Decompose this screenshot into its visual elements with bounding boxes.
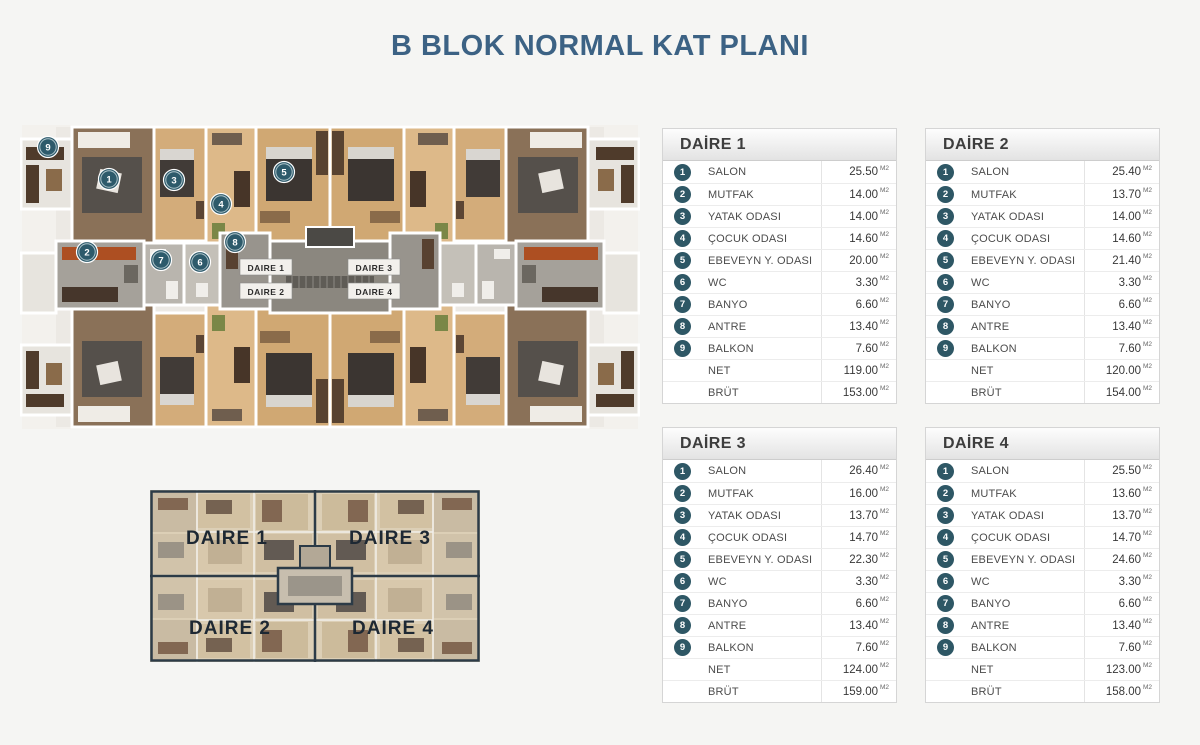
room-area-cell: 6.60M2 [1084, 294, 1159, 315]
room-marker: 2 [77, 242, 98, 263]
main-floorplan-image: DAIRE 1DAIRE 3DAIRE 2DAIRE 4 913452768 [20, 113, 640, 441]
room-label: BRÜT [708, 387, 821, 399]
mini-keyplan-image: DAIRE 1DAIRE 3DAIRE 2DAIRE 4 [150, 490, 480, 662]
table-row: 2MUTFAK16.00M2 [663, 482, 896, 504]
room-marker: 9 [38, 137, 59, 158]
room-area-cell: 13.40M2 [821, 615, 896, 636]
table-row: BRÜT158.00M2 [926, 680, 1159, 702]
room-area-value: 13.70 [849, 510, 878, 522]
room-area-cell: 24.60M2 [1084, 549, 1159, 570]
area-unit: M2 [1143, 165, 1154, 172]
room-number-badge: 2 [937, 186, 954, 203]
table-row: 2MUTFAK13.70M2 [926, 183, 1159, 205]
room-area-value: 123.00 [1106, 664, 1141, 676]
room-area-value: 22.30 [849, 554, 878, 566]
room-number-badge: 8 [674, 318, 691, 335]
room-label: BANYO [708, 299, 821, 311]
room-label: WC [971, 277, 1084, 289]
area-unit: M2 [1143, 596, 1154, 603]
room-area-value: 7.60 [856, 343, 878, 355]
room-label: YATAK ODASI [971, 211, 1084, 223]
area-unit: M2 [880, 486, 891, 493]
area-unit: M2 [880, 640, 891, 647]
table-row: 4ÇOCUK ODASI14.60M2 [663, 227, 896, 249]
room-number-badge: 2 [674, 186, 691, 203]
room-number-badge: 6 [674, 573, 691, 590]
room-area-cell: 3.30M2 [1084, 272, 1159, 293]
table-row: 1SALON25.50M2 [926, 460, 1159, 482]
room-area-value: 16.00 [849, 488, 878, 500]
room-number-badge: 5 [674, 252, 691, 269]
area-unit: M2 [1143, 385, 1154, 392]
room-area-value: 6.60 [1119, 598, 1141, 610]
room-number-badge: 1 [674, 463, 691, 480]
badge-spacer [937, 661, 954, 678]
room-label: ANTRE [971, 620, 1084, 632]
area-unit: M2 [880, 231, 891, 238]
room-number-badge: 7 [937, 595, 954, 612]
area-unit: M2 [880, 187, 891, 194]
area-unit: M2 [1143, 253, 1154, 260]
daire-3-table: DAİRE 3 1SALON26.40M22MUTFAK16.00M23YATA… [662, 427, 897, 703]
table-row: 9BALKON7.60M2 [926, 337, 1159, 359]
table-row: 5EBEVEYN Y. ODASI20.00M2 [663, 249, 896, 271]
daire-2-table: DAİRE 2 1SALON25.40M22MUTFAK13.70M23YATA… [925, 128, 1160, 404]
room-area-cell: 25.50M2 [1084, 460, 1159, 482]
room-area-cell: 13.70M2 [1084, 184, 1159, 205]
room-label: ANTRE [708, 321, 821, 333]
room-number-badge: 4 [674, 529, 691, 546]
badge-spacer [937, 384, 954, 401]
svg-text:7: 7 [158, 255, 163, 266]
apartment-title: DAİRE 2 [926, 129, 1159, 161]
room-area-value: 6.60 [1119, 299, 1141, 311]
room-area-value: 7.60 [856, 642, 878, 654]
table-row: 3YATAK ODASI13.70M2 [663, 504, 896, 526]
room-area-cell: 7.60M2 [1084, 338, 1159, 359]
area-unit: M2 [1143, 187, 1154, 194]
svg-text:4: 4 [218, 199, 224, 210]
room-area-value: 14.70 [849, 532, 878, 544]
area-unit: M2 [880, 596, 891, 603]
table-row: 3YATAK ODASI14.00M2 [663, 205, 896, 227]
room-number-badge: 9 [937, 340, 954, 357]
room-area-value: 13.70 [1112, 189, 1141, 201]
table-row: 6WC3.30M2 [663, 271, 896, 293]
room-area-value: 13.70 [1112, 510, 1141, 522]
area-unit: M2 [1143, 341, 1154, 348]
table-row: 6WC3.30M2 [663, 570, 896, 592]
room-area-cell: 3.30M2 [821, 571, 896, 592]
area-unit: M2 [880, 363, 891, 370]
table-row: 3YATAK ODASI13.70M2 [926, 504, 1159, 526]
room-number-badge: 8 [674, 617, 691, 634]
room-label: WC [708, 277, 821, 289]
room-number-badge: 2 [937, 485, 954, 502]
room-label: BANYO [971, 598, 1084, 610]
room-number-badge: 3 [674, 208, 691, 225]
room-area-value: 6.60 [856, 299, 878, 311]
keyplan-unit-label: DAIRE 4 [352, 618, 434, 639]
table-row: 4ÇOCUK ODASI14.70M2 [926, 526, 1159, 548]
room-label: MUTFAK [708, 189, 821, 201]
area-unit: M2 [880, 297, 891, 304]
table-row: 4ÇOCUK ODASI14.70M2 [663, 526, 896, 548]
room-number-badge: 9 [674, 340, 691, 357]
room-area-value: 20.00 [849, 255, 878, 267]
room-area-value: 13.40 [849, 321, 878, 333]
badge-spacer [674, 661, 691, 678]
svg-text:DAIRE 3: DAIRE 3 [355, 263, 392, 273]
room-area-value: 25.50 [849, 166, 878, 178]
room-area-value: 14.70 [1112, 532, 1141, 544]
area-unit: M2 [1143, 319, 1154, 326]
room-label: EBEVEYN Y. ODASI [708, 255, 821, 267]
table-row: 9BALKON7.60M2 [663, 337, 896, 359]
room-number-badge: 9 [674, 639, 691, 656]
room-area-cell: 7.60M2 [821, 338, 896, 359]
table-row: 7BANYO6.60M2 [926, 592, 1159, 614]
room-number-badge: 5 [937, 551, 954, 568]
core-notch [300, 546, 330, 570]
badge-spacer [937, 362, 954, 379]
room-number-badge: 9 [937, 639, 954, 656]
room-label: WC [708, 576, 821, 588]
room-number-badge: 1 [937, 164, 954, 181]
room-label: SALON [971, 465, 1084, 477]
room-label: BALKON [708, 642, 821, 654]
room-label: WC [971, 576, 1084, 588]
room-area-cell: 7.60M2 [1084, 637, 1159, 658]
table-row: 3YATAK ODASI14.00M2 [926, 205, 1159, 227]
room-area-value: 7.60 [1119, 343, 1141, 355]
room-area-cell: 26.40M2 [821, 460, 896, 482]
area-unit: M2 [880, 385, 891, 392]
room-marker: 8 [225, 232, 246, 253]
room-label: ÇOCUK ODASI [971, 532, 1084, 544]
apartment-title: DAİRE 3 [663, 428, 896, 460]
room-number-badge: 5 [937, 252, 954, 269]
table-row: BRÜT153.00M2 [663, 381, 896, 403]
corridor-unit-label: DAIRE 4 [348, 283, 400, 299]
area-unit: M2 [1143, 640, 1154, 647]
area-unit: M2 [880, 165, 891, 172]
room-area-cell: 3.30M2 [1084, 571, 1159, 592]
room-label: NET [708, 365, 821, 377]
room-area-cell: 14.00M2 [821, 184, 896, 205]
room-area-cell: 153.00M2 [821, 382, 896, 403]
apartment-rows: 1SALON25.50M22MUTFAK13.60M23YATAK ODASI1… [926, 460, 1159, 702]
table-row: NET123.00M2 [926, 658, 1159, 680]
room-area-value: 158.00 [1106, 686, 1141, 698]
svg-text:8: 8 [232, 237, 237, 248]
room-number-badge: 8 [937, 318, 954, 335]
room-area-cell: 21.40M2 [1084, 250, 1159, 271]
room-label: ÇOCUK ODASI [971, 233, 1084, 245]
area-unit: M2 [880, 530, 891, 537]
room-number-badge: 6 [937, 274, 954, 291]
room-number-badge: 6 [674, 274, 691, 291]
badge-spacer [937, 683, 954, 700]
room-number-badge: 3 [937, 507, 954, 524]
room-area-value: 3.30 [1119, 576, 1141, 588]
badge-spacer [674, 683, 691, 700]
svg-text:DAIRE 4: DAIRE 4 [355, 287, 392, 297]
corridor-unit-label: DAIRE 1 [240, 259, 292, 275]
room-marker: 7 [151, 250, 172, 271]
room-number-badge: 4 [937, 230, 954, 247]
corridor-unit-label: DAIRE 3 [348, 259, 400, 275]
room-number-badge: 6 [937, 573, 954, 590]
room-label: BALKON [708, 343, 821, 355]
badge-spacer [674, 362, 691, 379]
room-area-value: 25.40 [1112, 166, 1141, 178]
room-label: MUTFAK [971, 488, 1084, 500]
room-label: BANYO [971, 299, 1084, 311]
room-label: SALON [708, 465, 821, 477]
room-number-badge: 8 [937, 617, 954, 634]
room-area-value: 25.50 [1112, 465, 1141, 477]
table-row: 2MUTFAK14.00M2 [663, 183, 896, 205]
apartment-title: DAİRE 1 [663, 129, 896, 161]
room-area-value: 26.40 [849, 465, 878, 477]
table-row: 4ÇOCUK ODASI14.60M2 [926, 227, 1159, 249]
room-area-cell: 123.00M2 [1084, 659, 1159, 680]
room-area-cell: 7.60M2 [821, 637, 896, 658]
room-area-cell: 13.40M2 [821, 316, 896, 337]
room-area-value: 13.40 [849, 620, 878, 632]
table-row: 8ANTRE13.40M2 [926, 614, 1159, 636]
area-unit: M2 [880, 574, 891, 581]
table-row: 1SALON25.50M2 [663, 161, 896, 183]
table-row: 8ANTRE13.40M2 [926, 315, 1159, 337]
table-row: 9BALKON7.60M2 [663, 636, 896, 658]
svg-text:1: 1 [106, 174, 112, 185]
room-number-badge: 4 [937, 529, 954, 546]
area-unit: M2 [880, 662, 891, 669]
table-row: 7BANYO6.60M2 [663, 592, 896, 614]
area-unit: M2 [1143, 231, 1154, 238]
table-row: NET124.00M2 [663, 658, 896, 680]
room-marker: 5 [274, 162, 295, 183]
table-row: 6WC3.30M2 [926, 570, 1159, 592]
room-area-value: 14.00 [1112, 211, 1141, 223]
keyplan-unit-label: DAIRE 2 [189, 618, 271, 639]
room-area-value: 153.00 [843, 387, 878, 399]
area-unit: M2 [880, 209, 891, 216]
room-area-cell: 6.60M2 [1084, 593, 1159, 614]
area-unit: M2 [1143, 574, 1154, 581]
svg-text:3: 3 [171, 175, 176, 186]
area-unit: M2 [880, 508, 891, 515]
area-unit: M2 [1143, 684, 1154, 691]
room-area-value: 3.30 [856, 576, 878, 588]
page-title: B BLOK NORMAL KAT PLANI [0, 30, 1200, 63]
room-area-cell: 13.70M2 [1084, 505, 1159, 526]
table-row: NET120.00M2 [926, 359, 1159, 381]
apartment-rows: 1SALON25.50M22MUTFAK14.00M23YATAK ODASI1… [663, 161, 896, 403]
room-area-cell: 6.60M2 [821, 294, 896, 315]
room-area-cell: 14.60M2 [1084, 228, 1159, 249]
room-area-cell: 6.60M2 [821, 593, 896, 614]
area-unit: M2 [880, 684, 891, 691]
room-area-cell: 25.50M2 [821, 161, 896, 183]
area-unit: M2 [1143, 552, 1154, 559]
room-area-value: 14.60 [1112, 233, 1141, 245]
table-row: 7BANYO6.60M2 [926, 293, 1159, 315]
apartment-rows: 1SALON25.40M22MUTFAK13.70M23YATAK ODASI1… [926, 161, 1159, 403]
table-row: 1SALON25.40M2 [926, 161, 1159, 183]
room-area-value: 159.00 [843, 686, 878, 698]
area-unit: M2 [880, 341, 891, 348]
room-label: NET [971, 365, 1084, 377]
room-area-cell: 159.00M2 [821, 681, 896, 702]
room-label: NET [708, 664, 821, 676]
room-area-value: 3.30 [1119, 277, 1141, 289]
table-row: 5EBEVEYN Y. ODASI24.60M2 [926, 548, 1159, 570]
room-number-badge: 1 [937, 463, 954, 480]
area-unit: M2 [880, 253, 891, 260]
room-label: EBEVEYN Y. ODASI [708, 554, 821, 566]
room-area-cell: 22.30M2 [821, 549, 896, 570]
room-area-cell: 14.70M2 [821, 527, 896, 548]
table-row: 8ANTRE13.40M2 [663, 614, 896, 636]
room-marker: 1 [99, 169, 120, 190]
room-label: SALON [708, 166, 821, 178]
room-area-cell: 16.00M2 [821, 483, 896, 504]
room-area-value: 119.00 [844, 365, 878, 377]
table-row: 6WC3.30M2 [926, 271, 1159, 293]
table-row: 5EBEVEYN Y. ODASI22.30M2 [663, 548, 896, 570]
table-row: 1SALON26.40M2 [663, 460, 896, 482]
room-area-value: 3.30 [856, 277, 878, 289]
room-label: NET [971, 664, 1084, 676]
room-label: BRÜT [971, 686, 1084, 698]
apartment-rows: 1SALON26.40M22MUTFAK16.00M23YATAK ODASI1… [663, 460, 896, 702]
corridor-unit-label: DAIRE 2 [240, 283, 292, 299]
area-unit: M2 [1143, 530, 1154, 537]
area-unit: M2 [1143, 486, 1154, 493]
room-label: BRÜT [708, 686, 821, 698]
svg-text:5: 5 [281, 167, 287, 178]
room-area-cell: 20.00M2 [821, 250, 896, 271]
elevator-shaft [306, 227, 354, 247]
room-area-value: 6.60 [856, 598, 878, 610]
table-row: 8ANTRE13.40M2 [663, 315, 896, 337]
table-row: BRÜT159.00M2 [663, 680, 896, 702]
room-area-cell: 13.60M2 [1084, 483, 1159, 504]
room-area-cell: 14.70M2 [1084, 527, 1159, 548]
room-label: MUTFAK [708, 488, 821, 500]
room-area-value: 120.00 [1106, 365, 1141, 377]
area-unit: M2 [880, 618, 891, 625]
room-area-value: 154.00 [1106, 387, 1141, 399]
room-number-badge: 2 [674, 485, 691, 502]
room-label: ANTRE [971, 321, 1084, 333]
room-number-badge: 1 [674, 164, 691, 181]
room-area-value: 14.00 [849, 189, 878, 201]
room-label: MUTFAK [971, 189, 1084, 201]
area-unit: M2 [880, 319, 891, 326]
room-area-cell: 25.40M2 [1084, 161, 1159, 183]
room-area-cell: 14.60M2 [821, 228, 896, 249]
room-number-badge: 4 [674, 230, 691, 247]
svg-text:9: 9 [45, 142, 50, 153]
table-row: 2MUTFAK13.60M2 [926, 482, 1159, 504]
table-row: 5EBEVEYN Y. ODASI21.40M2 [926, 249, 1159, 271]
room-label: YATAK ODASI [708, 510, 821, 522]
room-number-badge: 3 [937, 208, 954, 225]
svg-text:DAIRE 2: DAIRE 2 [247, 287, 284, 297]
room-label: YATAK ODASI [971, 510, 1084, 522]
svg-text:DAIRE 1: DAIRE 1 [247, 263, 284, 273]
room-number-badge: 7 [674, 595, 691, 612]
keyplan-unit-label: DAIRE 3 [349, 528, 431, 549]
area-unit: M2 [880, 464, 891, 471]
room-label: EBEVEYN Y. ODASI [971, 255, 1084, 267]
daire-1-table: DAİRE 1 1SALON25.50M22MUTFAK14.00M23YATA… [662, 128, 897, 404]
room-label: BALKON [971, 642, 1084, 654]
area-unit: M2 [1143, 275, 1154, 282]
room-number-badge: 5 [674, 551, 691, 568]
area-unit: M2 [1143, 209, 1154, 216]
area-unit: M2 [1143, 508, 1154, 515]
room-label: BRÜT [971, 387, 1084, 399]
area-unit: M2 [880, 552, 891, 559]
room-area-cell: 13.70M2 [821, 505, 896, 526]
room-area-cell: 3.30M2 [821, 272, 896, 293]
room-label: ÇOCUK ODASI [708, 532, 821, 544]
room-area-value: 124.00 [843, 664, 878, 676]
room-marker: 4 [211, 194, 232, 215]
room-area-cell: 14.00M2 [1084, 206, 1159, 227]
room-area-cell: 14.00M2 [821, 206, 896, 227]
svg-text:6: 6 [197, 257, 202, 268]
badge-spacer [674, 384, 691, 401]
room-area-value: 21.40 [1112, 255, 1141, 267]
room-marker: 6 [190, 252, 211, 273]
room-number-badge: 3 [674, 507, 691, 524]
area-unit: M2 [1143, 662, 1154, 669]
table-row: 7BANYO6.60M2 [663, 293, 896, 315]
room-area-value: 13.60 [1112, 488, 1141, 500]
room-label: BALKON [971, 343, 1084, 355]
page: B BLOK NORMAL KAT PLANI [0, 0, 1200, 745]
room-area-value: 14.60 [849, 233, 878, 245]
area-unit: M2 [1143, 464, 1154, 471]
room-label: EBEVEYN Y. ODASI [971, 554, 1084, 566]
area-unit: M2 [1143, 297, 1154, 304]
table-row: 9BALKON7.60M2 [926, 636, 1159, 658]
area-unit: M2 [880, 275, 891, 282]
room-marker: 3 [164, 170, 185, 191]
room-number-badge: 7 [937, 296, 954, 313]
room-area-cell: 158.00M2 [1084, 681, 1159, 702]
room-label: BANYO [708, 598, 821, 610]
room-label: SALON [971, 166, 1084, 178]
room-area-value: 13.40 [1112, 620, 1141, 632]
room-area-value: 7.60 [1119, 642, 1141, 654]
room-number-badge: 7 [674, 296, 691, 313]
room-label: ANTRE [708, 620, 821, 632]
room-area-cell: 119.00M2 [821, 360, 896, 381]
table-row: BRÜT154.00M2 [926, 381, 1159, 403]
keyplan-unit-label: DAIRE 1 [186, 528, 268, 549]
room-area-cell: 124.00M2 [821, 659, 896, 680]
room-area-cell: 13.40M2 [1084, 615, 1159, 636]
area-unit: M2 [1143, 363, 1154, 370]
room-area-cell: 154.00M2 [1084, 382, 1159, 403]
